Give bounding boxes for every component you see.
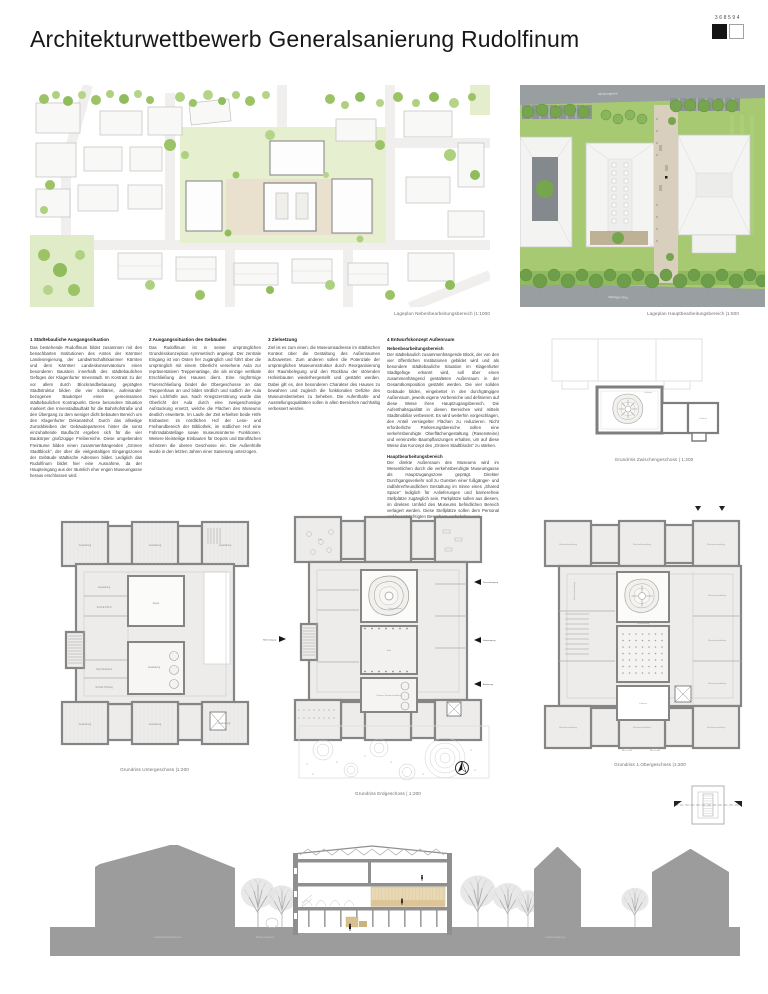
- svg-text:Museum Sonderausstellung: Museum Sonderausstellung: [377, 694, 402, 697]
- presentation-board: Architekturwettbewerb Generalsanierung R…: [0, 0, 768, 994]
- entry-arrow-icon: [474, 681, 481, 687]
- outline-square-icon: [729, 24, 744, 39]
- organic-auditorium-shape: [613, 394, 643, 424]
- svg-text:Ausstellung: Ausstellung: [79, 723, 92, 726]
- svg-text:Nebeneingang: Nebeneingang: [263, 640, 276, 642]
- text-column-2: 2 Ausgangssituation des Gebäudes Das Rud…: [149, 337, 261, 523]
- building-museum: [586, 143, 654, 247]
- svg-text:Wechselausstellung: Wechselausstellung: [559, 543, 577, 546]
- entry-arrow-icon: [279, 636, 286, 642]
- svg-text:Ausstellung: Ausstellung: [149, 544, 162, 547]
- museum-section: [293, 846, 452, 935]
- street-label-top: Museumgasse: [598, 91, 618, 96]
- floorplan-obergeschoss-figure: Wechselausstellung Wechselausstellung We…: [535, 504, 765, 767]
- neighbor-building-silhouette: [652, 849, 729, 930]
- svg-text:Technik HKLS: Technik HKLS: [96, 606, 111, 609]
- column-subheading: Nebenbearbeitungsbereich: [387, 346, 499, 351]
- floorplan-erdgeschoss-caption: Grundriss Erdgeschoss | 1:200: [253, 791, 523, 796]
- svg-text:Technik Elektro: Technik Elektro: [96, 668, 113, 671]
- building-left: [520, 137, 572, 247]
- floorplan-untergeschoss-caption: Grundriss Untergeschoss |1:200: [52, 767, 257, 772]
- svg-text:Luftraum: Luftraum: [639, 702, 647, 705]
- svg-text:Wechselausstellung: Wechselausstellung: [708, 639, 726, 642]
- text-column-1: 1 Städtebauliche Ausgangssituation Das b…: [30, 337, 142, 523]
- floorplan-zwischengeschoss-drawing: Luftraum Luftraum: [540, 337, 768, 449]
- north-arrow-icon: [456, 762, 469, 775]
- column-heading: 1 Städtebauliche Ausgangssituation: [30, 337, 142, 342]
- ground-label: Museumsgasse: [256, 935, 275, 939]
- organic-auditorium-shape: [625, 579, 659, 612]
- entry-number: 368594: [711, 15, 745, 21]
- svg-text:Wechselausstellung: Wechselausstellung: [707, 543, 725, 546]
- svg-text:Wechselausstellung: Wechselausstellung: [708, 682, 726, 685]
- siteplan-main-drawing: Museumgasse Viktringer Ring: [520, 85, 765, 307]
- page-title: Architekturwettbewerb Generalsanierung R…: [30, 26, 579, 53]
- elevator: [210, 712, 226, 730]
- siteplan-main-caption: Lageplan Hauptbearbeitungsbereich |1:500: [647, 311, 739, 316]
- pedestrian-path: [654, 105, 678, 283]
- street-label-bottom: Viktringer Ring: [608, 295, 628, 300]
- elevator: [447, 702, 461, 716]
- floorplan-obergeschoss-drawing: Wechselausstellung Wechselausstellung We…: [535, 504, 765, 751]
- svg-text:Museumsshop: Museumsshop: [388, 608, 402, 610]
- floorplan-zwischengeschoss-figure: Luftraum Luftraum Grundriss Zwischengesc…: [540, 337, 768, 462]
- ground-label: Landesregierung: [545, 935, 565, 939]
- siteplan-secondary-figure: Lageplan Nebenbearbeitungsbereich |1:100…: [30, 85, 490, 307]
- column-heading: 4 Entwurfskonzept Außenraum: [387, 337, 499, 342]
- floorplan-obergeschoss-caption: Grundriss 1.Obergeschoss |1:200: [535, 762, 765, 767]
- svg-text:Haupteingang: Haupteingang: [483, 639, 495, 642]
- elevator: [675, 686, 691, 702]
- svg-text:Wechselausstellung: Wechselausstellung: [708, 594, 726, 597]
- svg-text:Ausstellung: Ausstellung: [98, 586, 111, 589]
- entry-marker-squares: [711, 24, 745, 39]
- description-text-block: 1 Städtebauliche Ausgangssituation Das b…: [30, 337, 506, 523]
- ghost-outline: [552, 339, 702, 389]
- text-column-3: 3 Zielsetzung Ziel ist es zum einen, die…: [268, 337, 380, 523]
- section-elevation-drawing: Landwirtschaftskammer Museumsgasse Lande…: [50, 843, 740, 963]
- floorplan-untergeschoss-drawing: Ausstellung Ausstellung Ausstellung Auss…: [52, 516, 257, 746]
- column-heading: 3 Zielsetzung: [268, 337, 380, 342]
- svg-text:Ausstellung: Ausstellung: [218, 722, 231, 725]
- svg-text:Veranstaltung: Veranstaltung: [637, 622, 649, 625]
- svg-text:Wechselausstellung: Wechselausstellung: [559, 726, 577, 729]
- section-cut-marker-icon: [734, 801, 742, 807]
- svg-text:Wechselausstellung: Wechselausstellung: [633, 726, 651, 729]
- svg-text:Ausstellung: Ausstellung: [79, 544, 92, 547]
- section-key-plan: [672, 782, 744, 828]
- neighbor-building-silhouette: [534, 847, 581, 930]
- floorplan-untergeschoss-figure: Ausstellung Ausstellung Ausstellung Auss…: [52, 516, 257, 772]
- svg-text:Personaleingang: Personaleingang: [483, 582, 498, 584]
- column-subheading: Hauptbearbeitungsbereich: [387, 454, 499, 459]
- svg-text:Ausstellung: Ausstellung: [148, 666, 161, 669]
- column-paragraph: Das bestehende Rudolfinum bildet zusamme…: [30, 345, 142, 479]
- text-column-4: 4 Entwurfskonzept Außenraum Nebenbearbei…: [387, 337, 499, 523]
- floorplan-erdgeschoss-figure: Nebeneingang Personaleingang Haupteingan…: [253, 512, 523, 796]
- svg-text:Wechselausstellung: Wechselausstellung: [573, 582, 576, 600]
- column-paragraph: Der städtebaulich zusammenhängende Block…: [387, 352, 499, 450]
- neighbor-building-silhouette: [95, 845, 235, 930]
- siteplan-main-figure: Museumgasse Viktringer Ring Lageplan Hau…: [520, 85, 765, 307]
- svg-text:Wechselausstellung: Wechselausstellung: [707, 726, 725, 729]
- room-label: Luftraum: [644, 391, 652, 394]
- svg-text:Technik Heizung: Technik Heizung: [95, 686, 113, 689]
- svg-text:Ausstellung: Ausstellung: [219, 544, 232, 547]
- svg-text:Wechselausstellung: Wechselausstellung: [633, 543, 651, 546]
- column-paragraph: Das Rudolfinum ist in seiner ursprünglic…: [149, 345, 261, 455]
- svg-text:Anlieferung: Anlieferung: [483, 683, 493, 686]
- floorplan-erdgeschoss-drawing: Nebeneingang Personaleingang Haupteingan…: [253, 512, 523, 784]
- siteplan-secondary-drawing: [30, 85, 490, 307]
- column-heading: 2 Ausgangssituation des Gebäudes: [149, 337, 261, 342]
- entry-id-block: 368594: [711, 15, 745, 39]
- room-label: Luftraum: [699, 417, 707, 420]
- entry-arrow-icon: [474, 579, 481, 585]
- section-cut-marker-icon: [674, 801, 682, 807]
- svg-text:Depot: Depot: [153, 602, 160, 605]
- filled-square-icon: [712, 24, 727, 39]
- building-right: [678, 135, 750, 253]
- column-paragraph: Ziel ist es zum einen, die Museumsadress…: [268, 345, 380, 412]
- section-cut-markers: [695, 506, 725, 511]
- floorplan-zwischengeschoss-caption: Grundriss Zwischengeschoss | 1:200: [540, 457, 768, 462]
- siteplan-secondary-caption: Lageplan Nebenbearbeitungsbereich |1:100…: [394, 311, 490, 316]
- entry-arrow-icon: [474, 637, 481, 643]
- ground-label: Landwirtschaftskammer: [154, 935, 182, 939]
- svg-text:Ausstellung: Ausstellung: [149, 723, 162, 726]
